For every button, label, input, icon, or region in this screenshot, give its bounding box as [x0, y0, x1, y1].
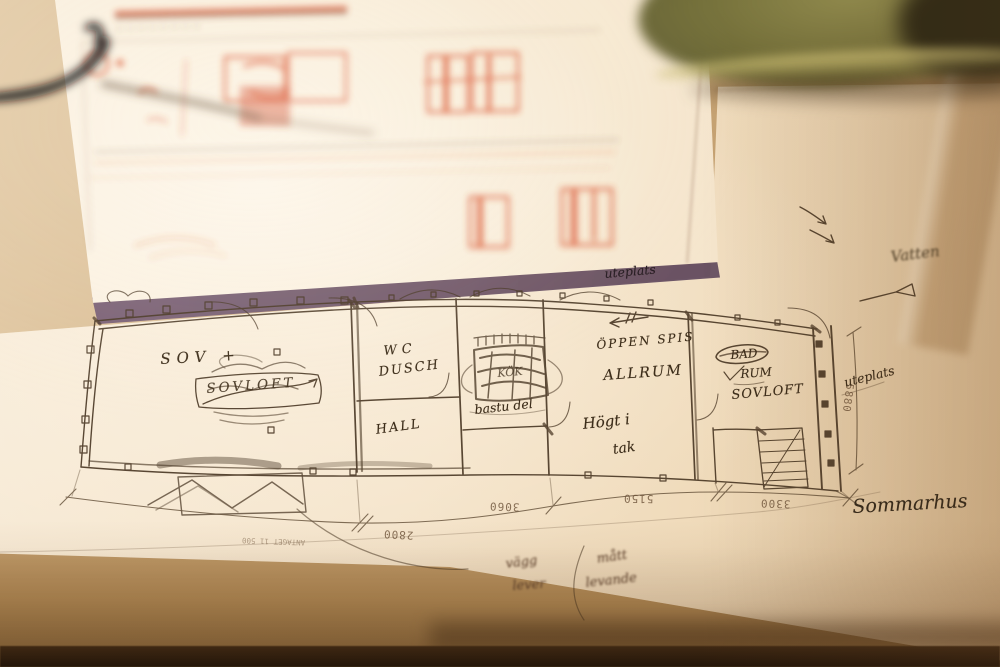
room-label-rum: RUM — [740, 366, 772, 380]
dim-3300: 3300 — [760, 496, 791, 510]
note-vagg: vägg — [505, 554, 538, 571]
note-matt: mått — [596, 549, 628, 566]
room-label-bad: BAD — [730, 347, 758, 361]
room-label-wc: WC — [383, 342, 417, 358]
dim-5150: 5150 — [623, 492, 654, 506]
table-dark-edge — [0, 646, 1000, 667]
room-label-kok: KÖK — [497, 366, 523, 379]
dim-2800: 2800 — [383, 527, 414, 542]
room-label-sov: SOV + — [160, 348, 241, 367]
photo-of-floorplan-sketches: SOV + SOVLOFT WC DUSCH HALL KÖK bastu de… — [0, 0, 1000, 667]
note-tak: tak — [612, 440, 636, 457]
dim-3060: 3060 — [489, 499, 520, 513]
note-lever: lever — [512, 578, 546, 593]
